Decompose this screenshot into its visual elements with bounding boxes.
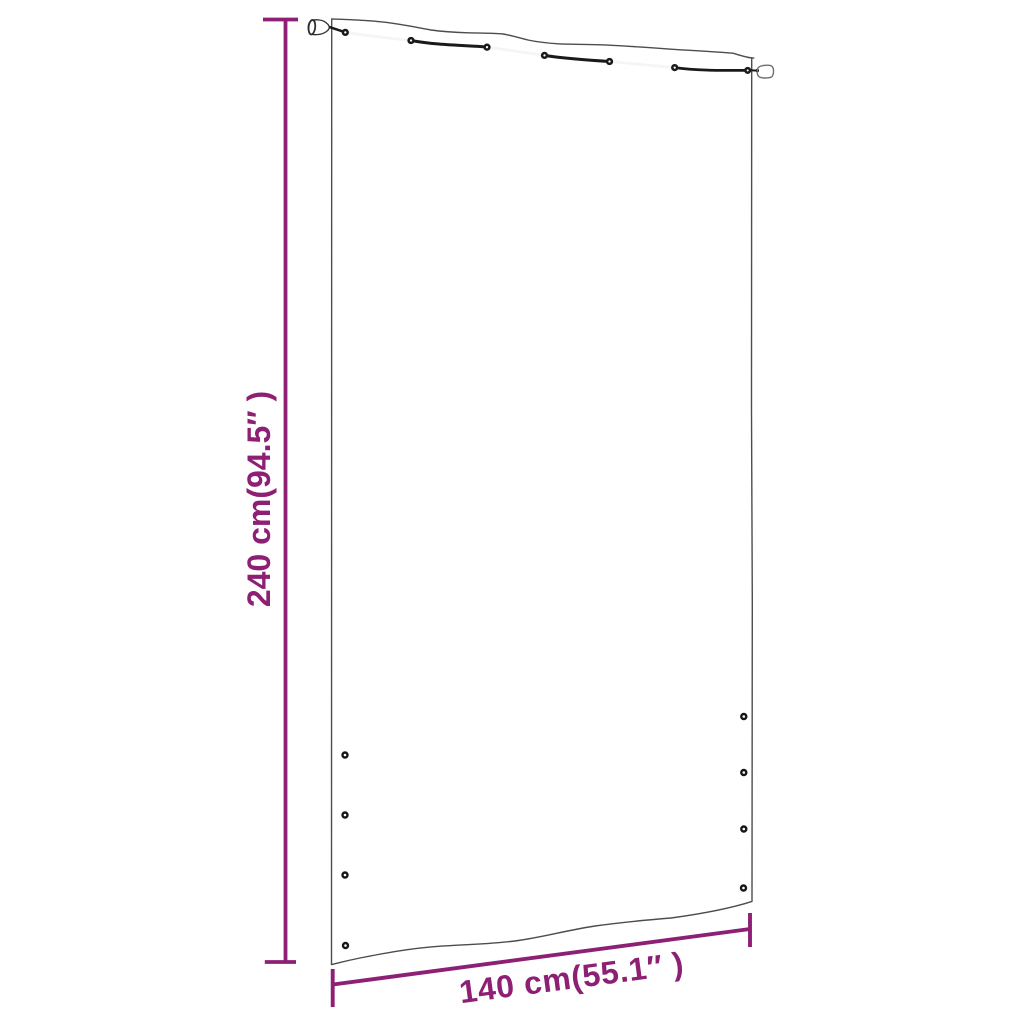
svg-text:240 cm(94.5″ ): 240 cm(94.5″ ) [241, 391, 277, 607]
svg-text:140 cm(55.1″ ): 140 cm(55.1″ ) [457, 945, 686, 1010]
